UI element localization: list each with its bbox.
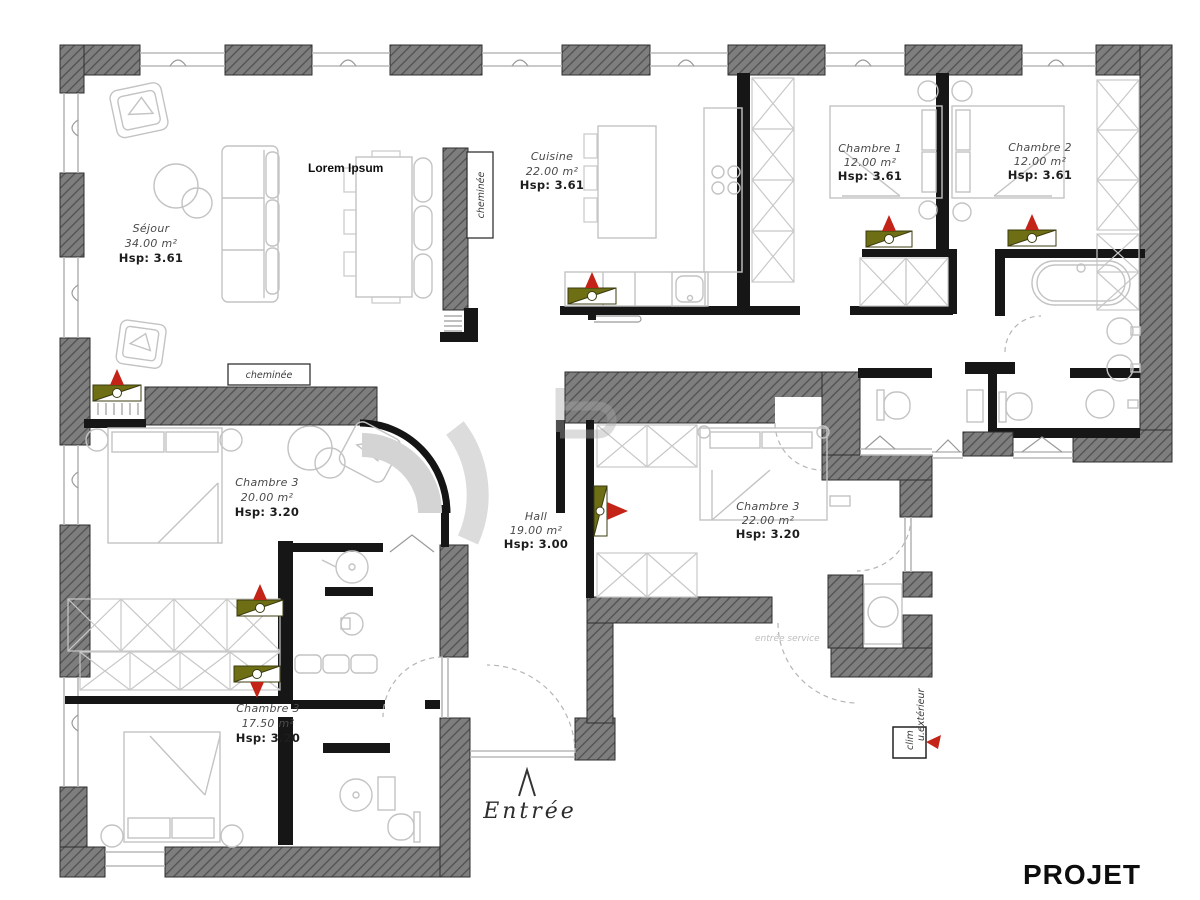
projet-title: PROJET [1023,859,1141,890]
chambre3-sud-label: Chambre 3 [236,702,300,715]
cheminee-wall-label: cheminée [246,370,293,381]
hall-label: Hall [525,510,547,523]
hall-area: 19.00 m² [510,524,563,537]
sejour-area: 34.00 m² [125,237,178,250]
outer-walls [60,45,1172,877]
lorem-ipsum-label: Lorem Ipsum [308,161,383,175]
chambre2-area: 12.00 m² [1014,155,1067,168]
clim-label: clim [905,730,916,750]
chambre3-est-label: Chambre 3 [736,500,800,513]
entree-label: Entrée [482,799,577,824]
chambre3-grande-hsp: Hsp: 3.20 [235,505,299,519]
chambre3-grande-area: 20.00 m² [241,491,294,504]
chambre1-hsp: Hsp: 3.61 [838,169,902,183]
chambre3-est-area: 22.00 m² [742,514,795,527]
clim-arrow-icon [926,735,941,749]
unite-exterieure-label: u.extérieur [916,688,927,741]
chambre3-sud-area: 17.50 m² [242,717,295,730]
floor-plan: Séjour 34.00 m² Hsp: 3.61 Cuisine 22.00 … [0,0,1200,900]
sejour-label: Séjour [133,222,171,235]
chambre2-label: Chambre 2 [1008,141,1072,154]
cuisine-area: 22.00 m² [526,165,579,178]
cheminee-sejour-box: cheminée [467,152,493,238]
chambre3-sud-furniture [101,732,243,847]
chambre1-label: Chambre 1 [838,142,902,155]
chambre3-sud-hsp: Hsp: 3.20 [236,731,300,745]
hall-hsp: Hsp: 3.00 [504,537,568,551]
cuisine-label: Cuisine [531,150,573,163]
cheminee-wall-box: cheminée [228,364,310,385]
chambre3-est-hsp: Hsp: 3.20 [736,527,800,541]
entree-service-label: entrée service [755,633,820,644]
sejour-hsp: Hsp: 3.61 [119,251,183,265]
chambre2-hsp: Hsp: 3.61 [1008,168,1072,182]
floor-plan-canvas: Séjour 34.00 m² Hsp: 3.61 Cuisine 22.00 … [0,0,1200,900]
chambre1-area: 12.00 m² [844,156,897,169]
entrance-arrow-icon [519,770,535,796]
cuisine-hsp: Hsp: 3.61 [520,178,584,192]
cheminee-sejour-label: cheminée [476,172,487,219]
chambre3-grande-label: Chambre 3 [235,476,299,489]
